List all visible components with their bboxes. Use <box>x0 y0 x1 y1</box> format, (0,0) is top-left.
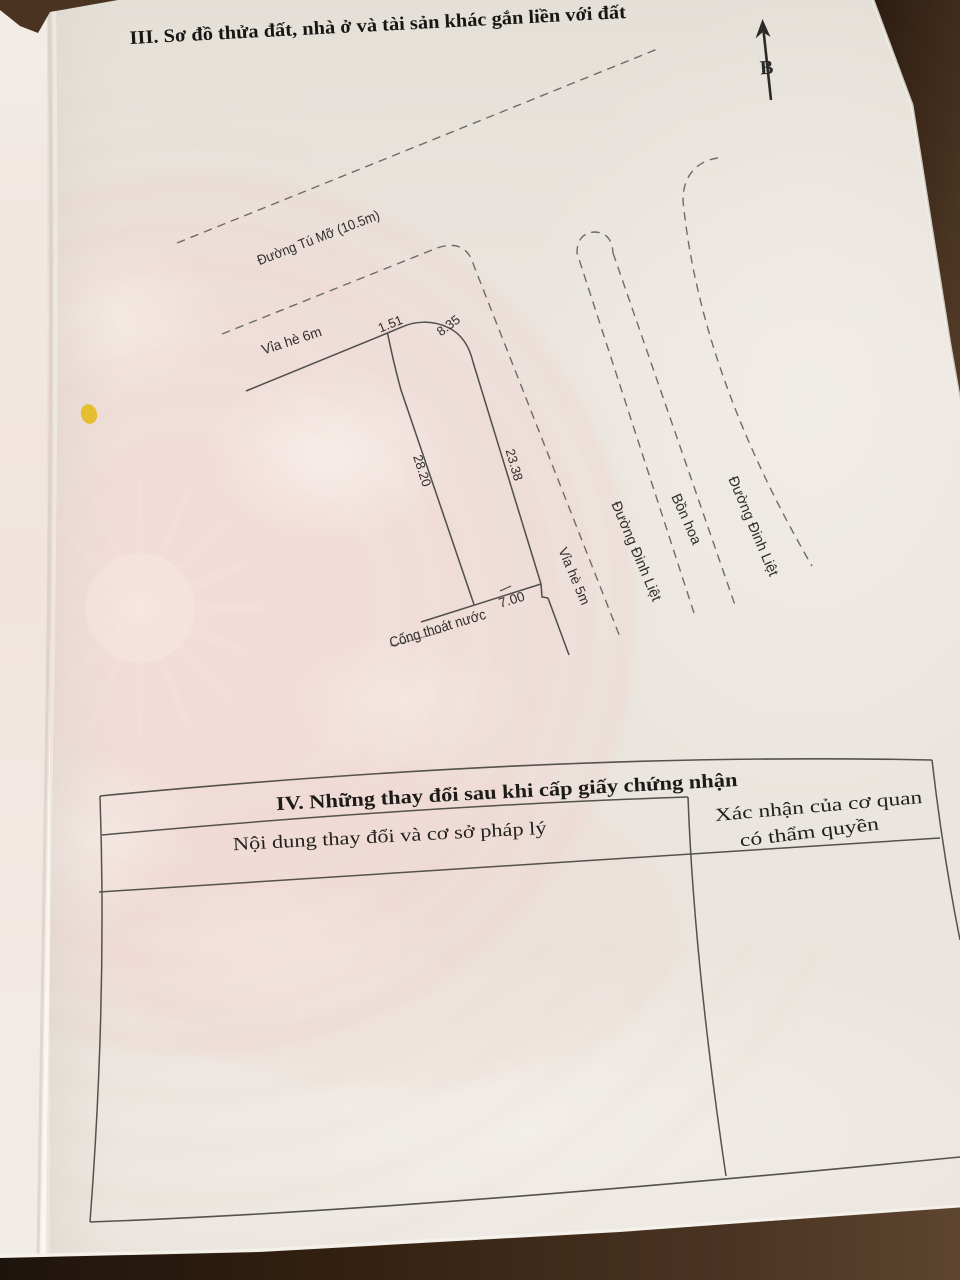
svg-text:B: B <box>759 57 774 80</box>
